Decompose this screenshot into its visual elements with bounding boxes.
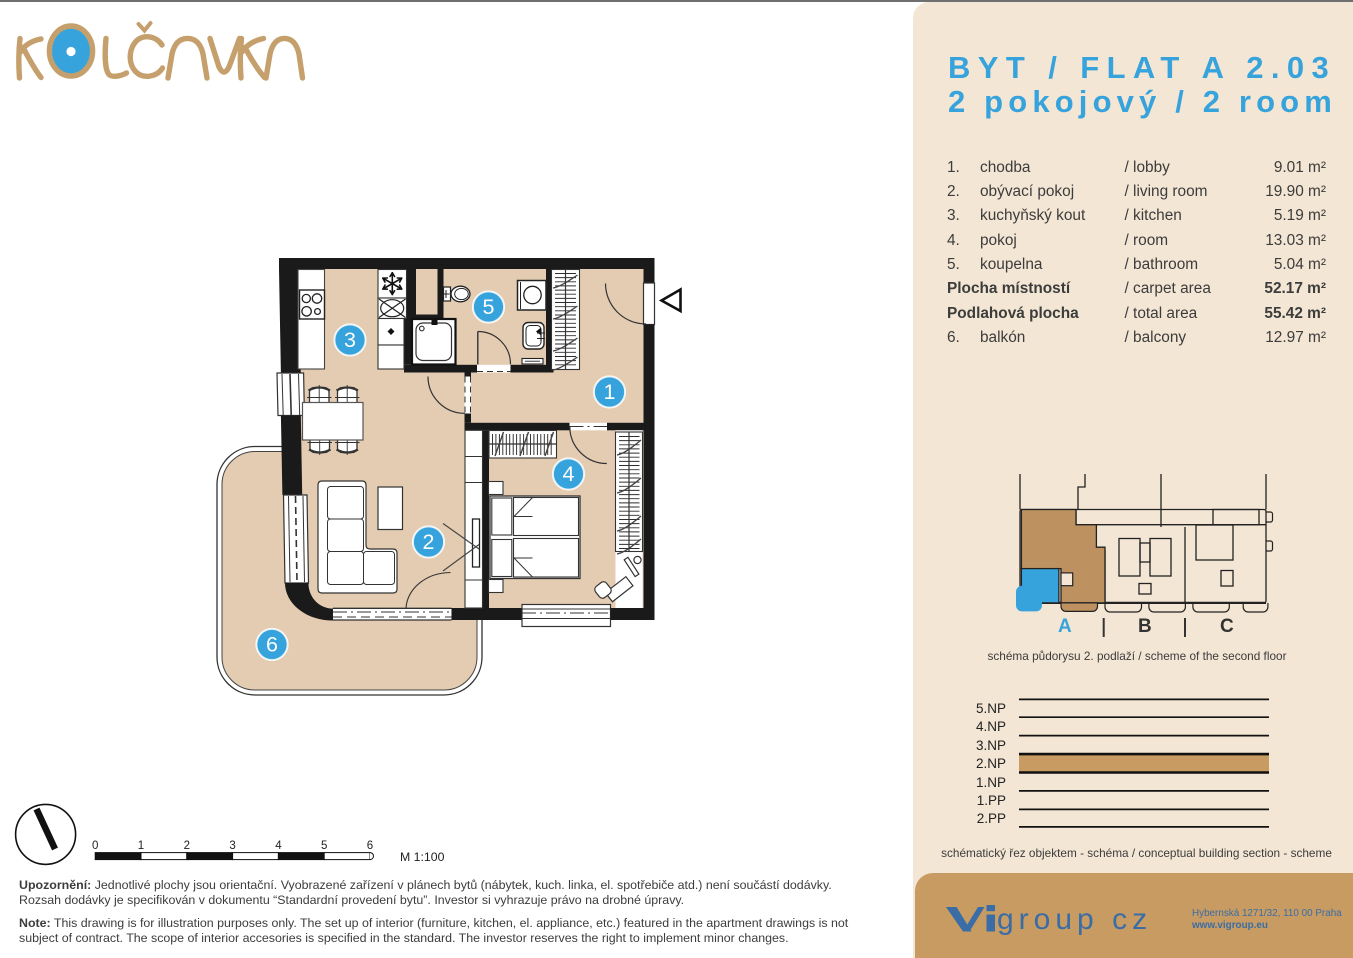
svg-text:6: 6 <box>266 633 278 657</box>
svg-text:5: 5 <box>483 295 495 319</box>
svg-text:3: 3 <box>229 840 235 852</box>
svg-text:M 1:100: M 1:100 <box>400 850 445 864</box>
svg-text:4: 4 <box>275 840 282 852</box>
svg-text:0: 0 <box>92 840 98 852</box>
svg-text:1: 1 <box>604 380 616 404</box>
svg-text:6: 6 <box>367 840 373 852</box>
svg-text:3: 3 <box>344 328 356 352</box>
svg-text:4: 4 <box>563 462 575 486</box>
svg-text:1: 1 <box>138 840 144 852</box>
svg-text:2: 2 <box>423 530 435 554</box>
svg-text:2: 2 <box>184 840 190 852</box>
svg-text:5: 5 <box>321 840 327 852</box>
